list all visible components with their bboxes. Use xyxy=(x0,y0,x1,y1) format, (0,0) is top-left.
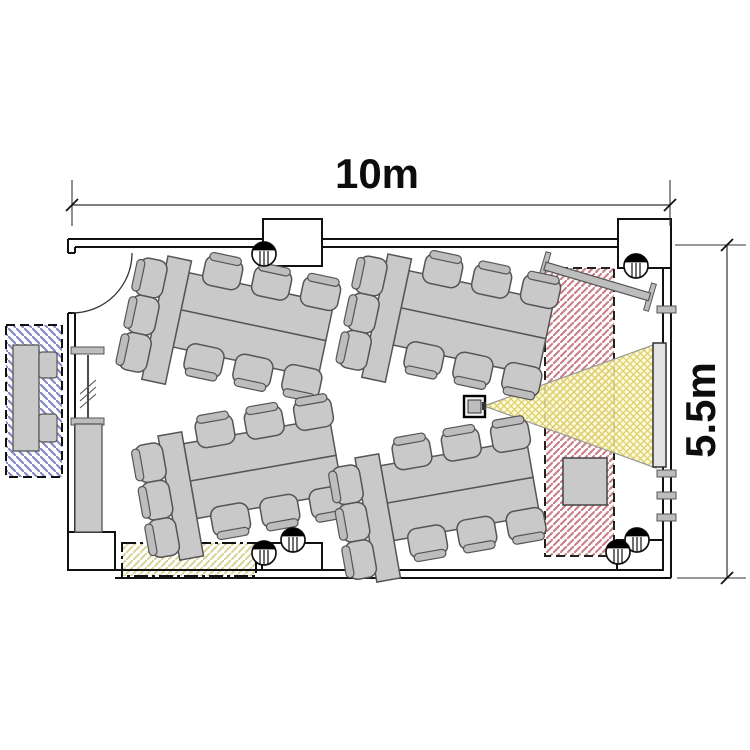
floor-marker xyxy=(281,528,305,552)
wall-niche xyxy=(68,532,115,570)
table-group-2 xyxy=(333,235,562,414)
dimension-label-height: 5.5m xyxy=(677,340,725,480)
window-mullion xyxy=(657,514,676,521)
dimension-label-width: 10m xyxy=(307,150,447,198)
projection-screen xyxy=(653,343,666,467)
floor-plan-page: 10m 5.5m xyxy=(0,0,750,750)
projector-lens xyxy=(468,400,481,413)
floor-plan-canvas xyxy=(0,0,750,750)
window-mullion xyxy=(657,306,676,313)
corridor-table xyxy=(13,345,39,451)
mullion-cap xyxy=(71,347,104,354)
floor-marker xyxy=(252,242,276,266)
storage-cabinet xyxy=(563,458,607,505)
door-swing-arc xyxy=(72,253,132,313)
floor-marker xyxy=(624,254,648,278)
table-group-3 xyxy=(127,393,353,565)
floor-marker xyxy=(252,541,276,565)
corridor-chair xyxy=(39,414,57,442)
wall-column xyxy=(75,424,102,532)
corridor-chair xyxy=(39,352,57,378)
projector-mount xyxy=(482,402,486,410)
window-mullion xyxy=(657,492,676,499)
floor-marker xyxy=(606,540,630,564)
window-mullion xyxy=(657,470,676,477)
table-group-4 xyxy=(324,415,550,587)
